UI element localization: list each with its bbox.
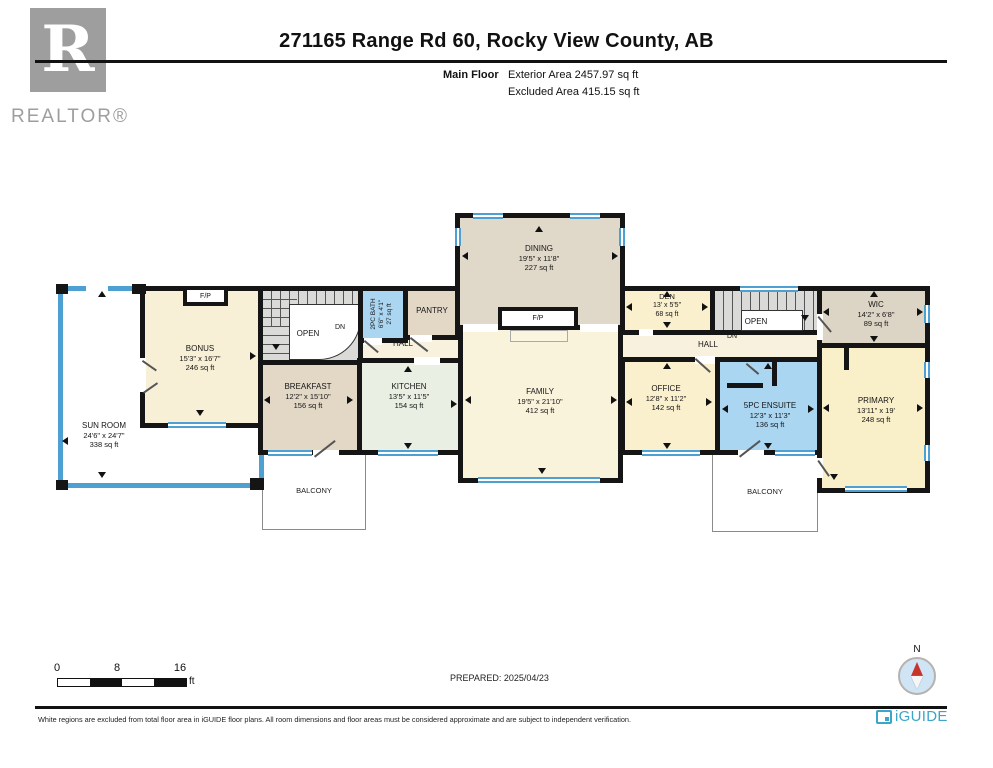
window (473, 213, 503, 219)
room-name: SUN ROOM (44, 421, 164, 431)
room-area: 227 sq ft (479, 263, 599, 273)
dimension-arrow-icon (830, 474, 838, 480)
room-dims: 19'5" x 21'10" (480, 397, 600, 407)
wall-cap (132, 284, 146, 294)
room-dims: 6'6" x 4'1" (378, 298, 386, 329)
fireplace-dining: F/P (498, 307, 578, 330)
wall-opening (639, 329, 653, 336)
dimension-arrow-icon (722, 405, 728, 413)
dimension-arrow-icon (62, 437, 68, 445)
open-left-label: OPEN (288, 329, 328, 338)
dimension-arrow-icon (98, 472, 106, 478)
page-title: 271165 Range Rd 60, Rocky View County, A… (0, 30, 993, 53)
scale-segment (154, 679, 186, 686)
dimension-arrow-icon (823, 308, 829, 316)
dn-left-label: DN (330, 324, 350, 331)
scale-tick-16: 16 (170, 662, 190, 674)
title-divider (35, 60, 947, 63)
dimension-arrow-icon (706, 398, 712, 406)
dn-right-label: DN (722, 333, 742, 340)
room-name: FAMILY (480, 387, 600, 397)
dimension-arrow-icon (535, 226, 543, 232)
hall-left-label: HALL (383, 339, 423, 348)
fireplace-bonus: F/P (183, 286, 228, 306)
room-dims: 15'3" x 16'7" (140, 354, 260, 364)
dimension-arrow-icon (451, 400, 457, 408)
room-dims: 19'5" x 11'8" (479, 254, 599, 264)
scale-bar (57, 678, 187, 687)
window (775, 450, 815, 456)
window (845, 486, 907, 492)
ensuite-wc-wall (772, 360, 777, 386)
dimension-arrow-icon (663, 322, 671, 328)
window (478, 477, 600, 483)
dn-label: DN (335, 324, 345, 331)
window (455, 228, 461, 246)
iguide-logo: iGUIDE (876, 708, 948, 725)
realtor-logo: R (30, 8, 106, 92)
dimension-arrow-icon (808, 405, 814, 413)
primary-closet-wall (844, 348, 849, 370)
wall-opening (463, 324, 498, 332)
wall-cap (56, 284, 68, 294)
balcony-label: BALCONY (296, 486, 332, 495)
realtor-wordmark: REALTOR® (2, 106, 138, 128)
hall-label: HALL (698, 340, 718, 349)
dimension-arrow-icon (347, 396, 353, 404)
room-area: 136 sq ft (710, 420, 830, 430)
window (924, 362, 930, 378)
room-label-dining: DINING 19'5" x 11'8" 227 sq ft (479, 244, 599, 273)
floorplan-page: R REALTOR® 271165 Range Rd 60, Rocky Vie… (0, 0, 993, 768)
dimension-arrow-icon (764, 363, 772, 369)
window (924, 445, 930, 461)
open-right-label: OPEN (734, 317, 778, 326)
scale-tick-0: 0 (50, 662, 64, 674)
window (642, 450, 700, 456)
scale-tick-8: 8 (110, 662, 124, 674)
scale-segment (90, 679, 122, 686)
floor-label: Main Floor (443, 69, 499, 81)
room-label-pantry: PANTRY (392, 306, 472, 315)
compass-rose-icon (898, 657, 936, 695)
iguide-wordmark: iGUIDE (895, 708, 948, 725)
room-area: 412 sq ft (480, 406, 600, 416)
scale-segment (58, 679, 90, 686)
wall-cap (250, 478, 264, 490)
wall-cap (56, 480, 68, 490)
scale-unit: ft (189, 676, 195, 687)
prepared-date: PREPARED: 2025/04/23 (450, 673, 549, 683)
scale-segment (122, 679, 154, 686)
wall-opening (580, 324, 618, 332)
dimension-arrow-icon (250, 352, 256, 360)
open-label: OPEN (297, 329, 320, 338)
room-area: 248 sq ft (816, 415, 936, 425)
dimension-arrow-icon (626, 303, 632, 311)
fireplace-label: F/P (533, 315, 544, 322)
wall-opening (414, 357, 440, 365)
open-label: OPEN (745, 317, 768, 326)
room-name: KITCHEN (349, 382, 469, 392)
dimension-arrow-icon (404, 443, 412, 449)
room-name: 2PC BATH (370, 298, 378, 329)
room-label-sun-room: SUN ROOM 24'6" x 24'7" 338 sq ft (44, 421, 164, 450)
iguide-camera-icon (876, 710, 892, 724)
dimension-arrow-icon (462, 252, 468, 260)
excluded-area-text: Excluded Area 415.15 sq ft (508, 86, 639, 98)
room-name: BONUS (140, 344, 260, 354)
dn-label: DN (727, 333, 737, 340)
dimension-arrow-icon (823, 404, 829, 412)
dimension-arrow-icon (870, 336, 878, 342)
dimension-arrow-icon (538, 468, 546, 474)
window (378, 450, 438, 456)
dimension-arrow-icon (702, 303, 708, 311)
dimension-arrow-icon (404, 366, 412, 372)
dimension-arrow-icon (663, 291, 671, 297)
window (619, 228, 625, 246)
room-label-bonus: BONUS 15'3" x 16'7" 246 sq ft (140, 344, 260, 373)
room-area: 68 sq ft (607, 310, 727, 319)
room-name: PANTRY (416, 306, 448, 315)
balcony-right: BALCONY (712, 450, 818, 532)
dimension-arrow-icon (626, 398, 632, 406)
room-area: 246 sq ft (140, 363, 260, 373)
realtor-r-icon: R (41, 18, 94, 82)
dimension-arrow-icon (612, 252, 618, 260)
hall-right-label: HALL (688, 340, 728, 349)
window (570, 213, 600, 219)
dimension-arrow-icon (611, 396, 617, 404)
balcony-label: BALCONY (747, 487, 783, 496)
exterior-area-text: Exterior Area 2457.97 sq ft (508, 69, 638, 81)
dimension-arrow-icon (917, 308, 923, 316)
dimension-arrow-icon (465, 396, 471, 404)
window (168, 422, 226, 428)
footer-divider (35, 706, 947, 709)
compass-north-label: N (897, 644, 937, 655)
dimension-arrow-icon (196, 410, 204, 416)
room-label-family: FAMILY 19'5" x 21'10" 412 sq ft (480, 387, 600, 416)
fireplace-hearth (510, 330, 568, 342)
window (740, 286, 798, 292)
room-area: 89 sq ft (816, 319, 936, 329)
stair-direction-arrow-icon (801, 315, 809, 321)
compass: N (897, 644, 937, 695)
ensuite-wc-wall (727, 383, 763, 388)
room-dims: 13' x 5'5" (607, 301, 727, 310)
dimension-arrow-icon (663, 363, 671, 369)
compass-needle-south (911, 676, 923, 689)
fireplace-label: F/P (200, 293, 211, 300)
compass-needle-north (911, 662, 923, 676)
dimension-arrow-icon (663, 443, 671, 449)
dimension-arrow-icon (98, 291, 106, 297)
disclaimer-text: White regions are excluded from total fl… (38, 715, 858, 724)
dimension-arrow-icon (264, 396, 270, 404)
room-name: OFFICE (606, 384, 726, 394)
dimension-arrow-icon (764, 443, 772, 449)
window (268, 450, 312, 456)
hall-label: HALL (393, 339, 413, 348)
dimension-arrow-icon (917, 404, 923, 412)
dimension-arrow-icon (870, 291, 878, 297)
balcony-left: BALCONY (262, 450, 366, 530)
stair-direction-arrow-icon (272, 344, 280, 350)
room-name: DINING (479, 244, 599, 254)
